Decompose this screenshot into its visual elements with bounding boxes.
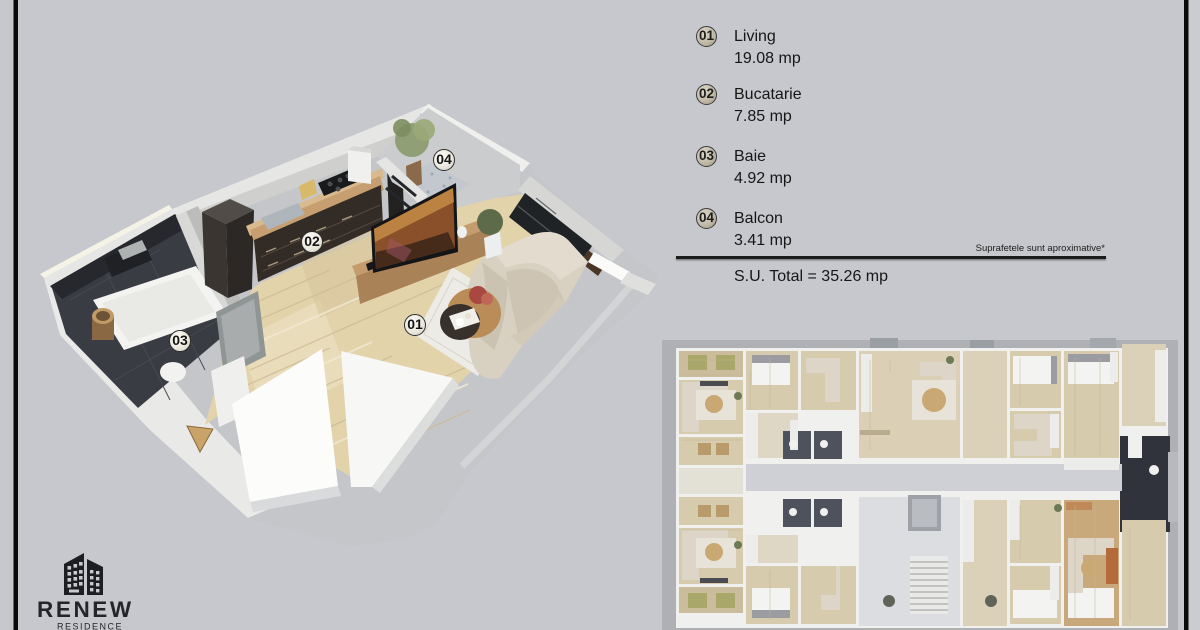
svg-text:RENEW: RENEW bbox=[37, 597, 134, 622]
svg-text:RESIDENCE: RESIDENCE bbox=[57, 622, 123, 630]
